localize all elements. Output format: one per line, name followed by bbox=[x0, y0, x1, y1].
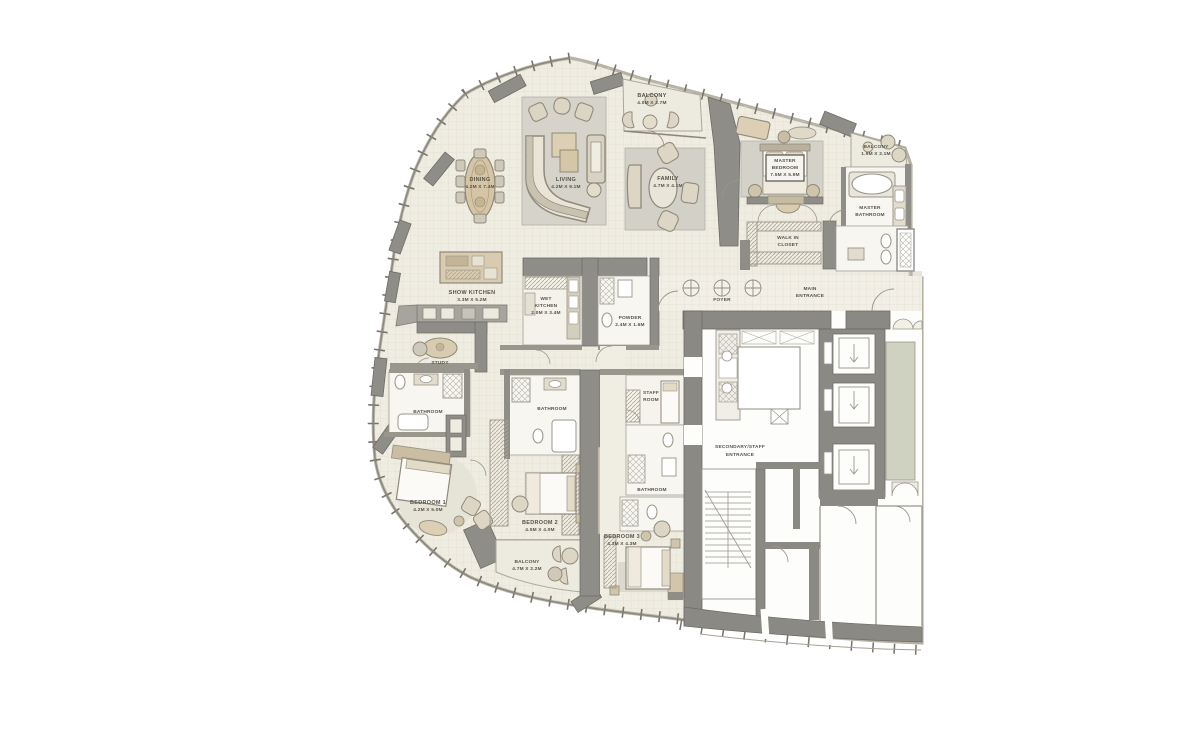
svg-text:1.9M X 2.1M: 1.9M X 2.1M bbox=[861, 151, 890, 157]
svg-text:BALCONY: BALCONY bbox=[637, 93, 666, 99]
svg-text:4.7M X 2.2M: 4.7M X 2.2M bbox=[512, 566, 541, 572]
svg-text:BATHROOM: BATHROOM bbox=[537, 406, 567, 412]
svg-text:4.7M X 4.1M: 4.7M X 4.1M bbox=[653, 183, 682, 189]
svg-text:STAFF: STAFF bbox=[643, 390, 659, 396]
svg-text:FAMILY: FAMILY bbox=[657, 176, 678, 182]
svg-text:7.5M X 5.9M: 7.5M X 5.9M bbox=[770, 172, 799, 178]
svg-text:BALCONY: BALCONY bbox=[514, 559, 540, 565]
svg-text:BATHROOM: BATHROOM bbox=[855, 212, 885, 218]
svg-text:3.3M X 5.2M: 3.3M X 5.2M bbox=[457, 297, 486, 303]
svg-text:KITCHEN: KITCHEN bbox=[535, 303, 558, 309]
svg-text:ENTRANCE: ENTRANCE bbox=[726, 452, 755, 458]
svg-text:BEDROOM 3: BEDROOM 3 bbox=[604, 534, 640, 540]
svg-text:MASTER: MASTER bbox=[859, 205, 881, 211]
svg-text:STUDY: STUDY bbox=[431, 360, 449, 366]
svg-text:BALCONY: BALCONY bbox=[863, 144, 889, 150]
svg-text:WET: WET bbox=[540, 296, 551, 302]
svg-text:SECONDARY/STAFF: SECONDARY/STAFF bbox=[715, 444, 765, 450]
svg-text:4.5M X 4.0M: 4.5M X 4.0M bbox=[525, 527, 554, 533]
svg-text:4.3M X 4.3M: 4.3M X 4.3M bbox=[607, 541, 636, 547]
svg-text:2.4M X 1.6M: 2.4M X 1.6M bbox=[615, 322, 644, 328]
svg-text:MASTER: MASTER bbox=[774, 158, 796, 164]
svg-text:POWDER: POWDER bbox=[619, 315, 642, 321]
svg-text:4.2M X 9.1M: 4.2M X 9.1M bbox=[551, 184, 580, 190]
svg-text:DINING: DINING bbox=[469, 177, 490, 183]
svg-text:BEDROOM: BEDROOM bbox=[772, 165, 798, 171]
svg-text:BATHROOM: BATHROOM bbox=[637, 487, 667, 493]
svg-text:BEDROOM 2: BEDROOM 2 bbox=[522, 520, 558, 526]
svg-text:BATHROOM: BATHROOM bbox=[413, 409, 443, 415]
svg-text:SHOW KITCHEN: SHOW KITCHEN bbox=[449, 290, 496, 296]
svg-text:FOYER: FOYER bbox=[713, 297, 731, 303]
svg-text:CLOSET: CLOSET bbox=[778, 242, 799, 248]
svg-text:4.2M X 5.0M: 4.2M X 5.0M bbox=[413, 507, 442, 513]
svg-text:2.0M X 3.4M: 2.0M X 3.4M bbox=[531, 310, 560, 316]
svg-text:ROOM: ROOM bbox=[643, 397, 659, 403]
svg-text:4.2M X 7.4M: 4.2M X 7.4M bbox=[465, 184, 494, 190]
svg-text:BEDROOM 1: BEDROOM 1 bbox=[410, 500, 446, 506]
svg-text:ENTRANCE: ENTRANCE bbox=[796, 293, 825, 299]
svg-text:MAIN: MAIN bbox=[803, 286, 816, 292]
svg-text:WALK IN: WALK IN bbox=[777, 235, 799, 241]
svg-text:LIVING: LIVING bbox=[556, 177, 576, 183]
svg-text:4.0M X 2.7M: 4.0M X 2.7M bbox=[637, 100, 666, 106]
